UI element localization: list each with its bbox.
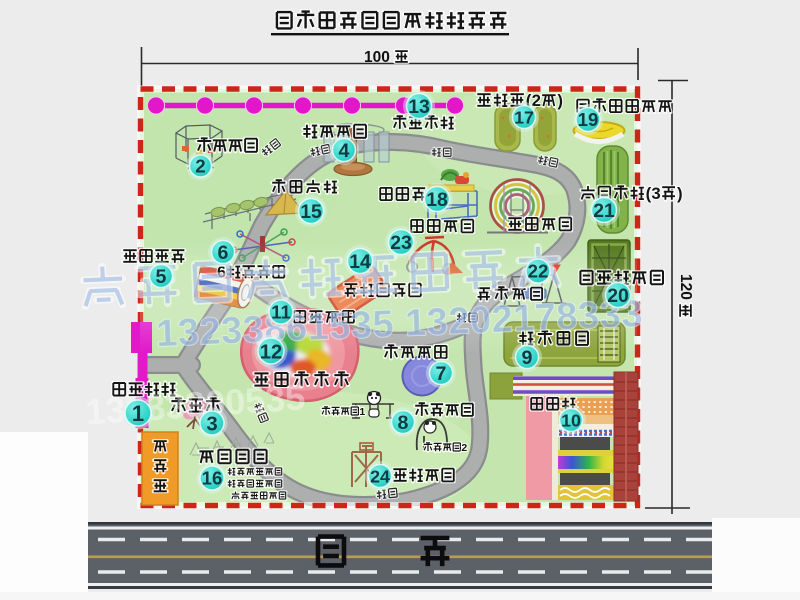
svg-text:4: 4 [339,140,350,162]
svg-text:23: 23 [390,232,412,254]
svg-text:14: 14 [349,251,371,273]
svg-text:22: 22 [528,261,549,282]
svg-text:9: 9 [522,347,533,369]
svg-text:2: 2 [461,442,467,454]
svg-text:20: 20 [607,285,629,307]
svg-text:21: 21 [593,200,615,222]
svg-text:11: 11 [271,302,291,323]
svg-text:3: 3 [651,184,660,203]
svg-text:24: 24 [370,466,390,486]
svg-text:2: 2 [195,156,205,177]
svg-text:6: 6 [218,242,229,264]
svg-text:7: 7 [436,363,447,385]
svg-text:12: 12 [260,341,282,363]
svg-text:18: 18 [426,189,448,211]
svg-text:10: 10 [561,410,581,430]
svg-text:): ) [557,91,563,110]
svg-text:1: 1 [359,406,365,418]
svg-text:17: 17 [514,107,534,127]
svg-text:100: 100 [364,49,390,66]
svg-text:19: 19 [578,109,599,130]
svg-text:1: 1 [132,401,144,426]
svg-text:16: 16 [202,468,223,489]
svg-text:120: 120 [677,274,694,300]
svg-text:3: 3 [206,413,217,435]
svg-text:): ) [677,184,683,203]
svg-text:15: 15 [300,201,322,223]
svg-text:8: 8 [398,412,409,434]
svg-text:13: 13 [408,96,430,118]
svg-text:5: 5 [156,266,167,288]
